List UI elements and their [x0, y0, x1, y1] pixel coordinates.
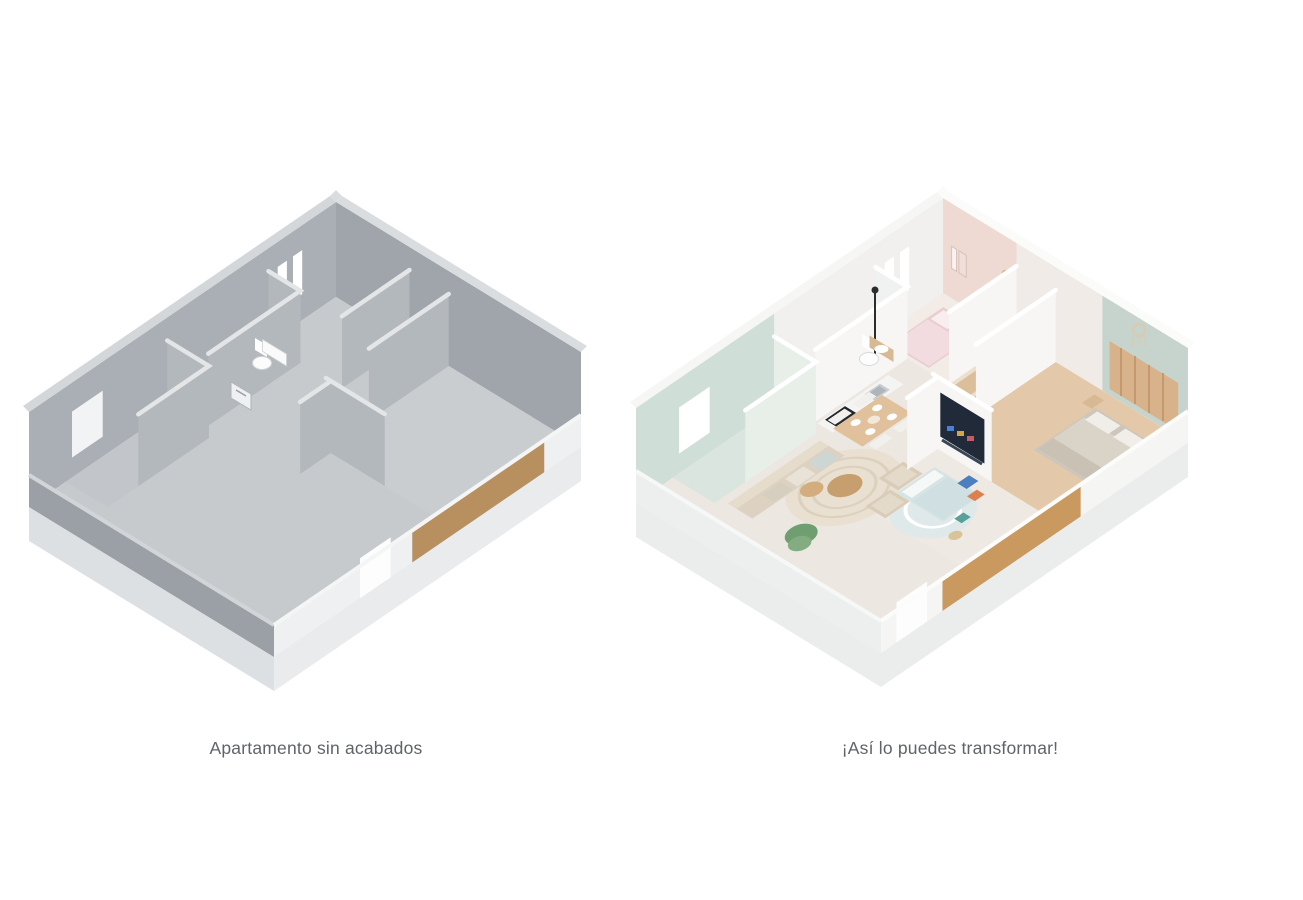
tv-content — [947, 426, 954, 431]
wall-frame — [959, 251, 966, 277]
floorplan-before-illustration — [6, 172, 626, 712]
toilet — [860, 353, 879, 366]
wall-frame — [952, 246, 957, 271]
toilet — [253, 357, 272, 370]
comparison-page: Apartamento sin acabados ¡Así lo puedes … — [0, 0, 1303, 900]
tv-content — [957, 431, 964, 436]
caption-after: ¡Así lo puedes transformar! — [640, 736, 1260, 760]
tv-content — [967, 436, 974, 441]
caption-before: Apartamento sin acabados — [0, 736, 632, 760]
shower-head — [872, 287, 879, 294]
floorplan-after-illustration — [613, 168, 1233, 708]
vanity-sink — [875, 345, 889, 353]
